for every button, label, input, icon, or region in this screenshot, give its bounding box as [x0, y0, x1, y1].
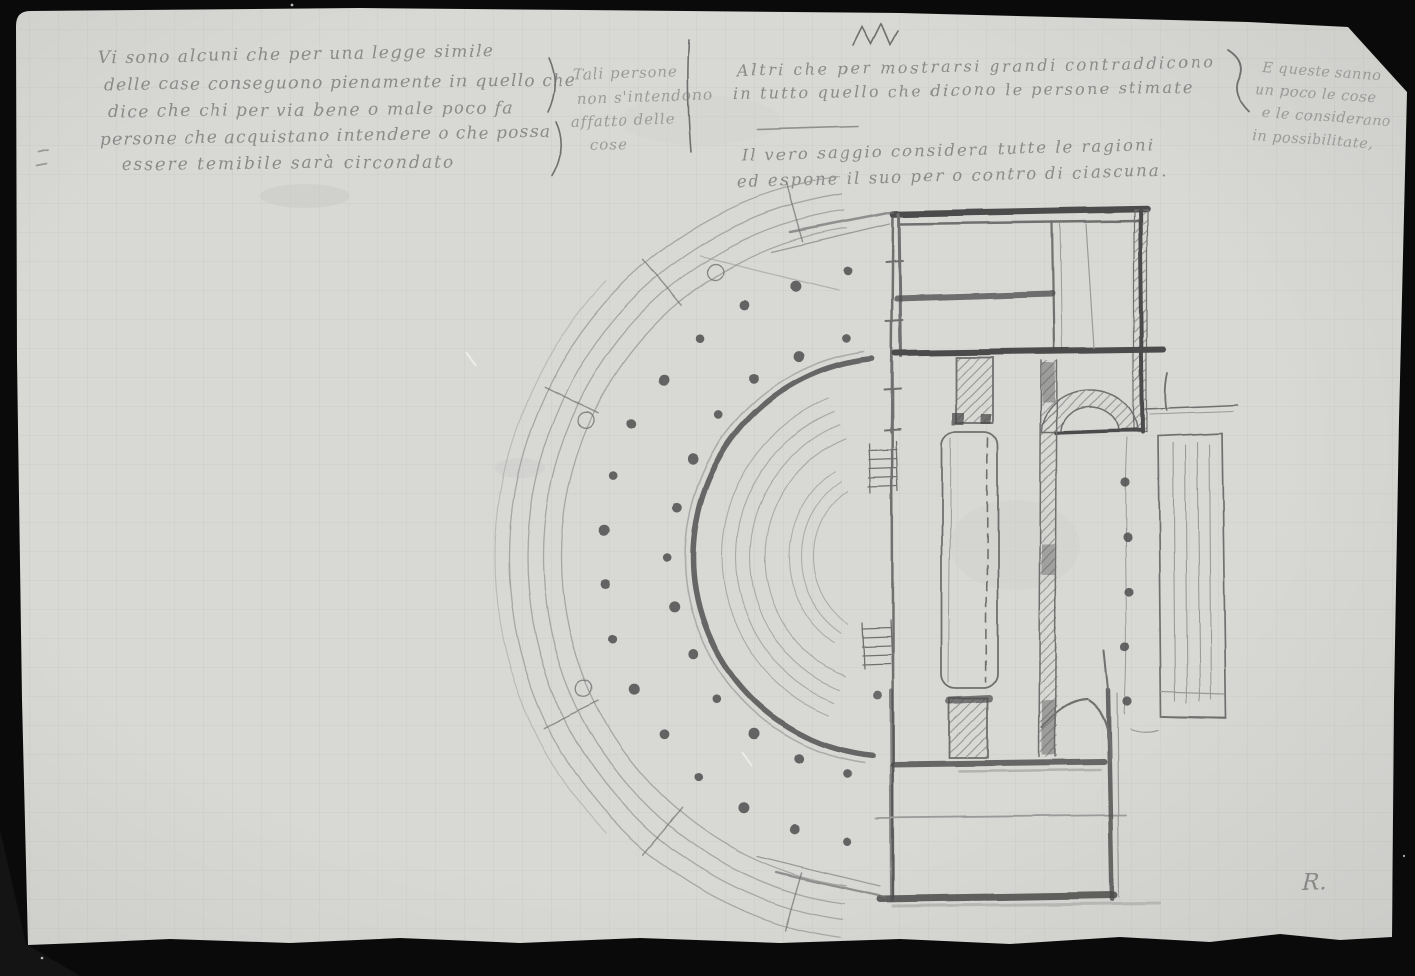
column-dot-outer [608, 471, 617, 480]
handwritten-line: delle case conseguono pienamente in quel… [104, 71, 576, 95]
column-dot-outer [739, 803, 750, 814]
column-dot-outer [696, 334, 705, 343]
column-dot-outer [694, 773, 703, 782]
column-dot-outer [608, 634, 617, 643]
wall-dark-segment [1042, 362, 1055, 402]
handwritten-line: cose [590, 135, 629, 154]
bottom-block-upper-band [893, 762, 1104, 765]
handwritten-line: essere temibile sarà circondato [122, 152, 455, 175]
column-dot-inner [714, 411, 723, 420]
dust-speck [41, 957, 44, 960]
top-block-bottom-band [895, 349, 1164, 353]
handwritten-line: dice che chi per via bene o male poco fa [108, 98, 515, 122]
handwritten-line: affatto delle [571, 109, 676, 131]
column-dot-inner [688, 650, 698, 660]
handwritten-line: Tali persone [573, 62, 679, 84]
bottom-block-bottom-band [880, 895, 1114, 899]
column-dot-outer [660, 729, 670, 739]
column-dot-right [1122, 532, 1131, 541]
photo: Vi sono alcuni che per una legge simile … [0, 0, 1415, 976]
column-dot-inner [687, 454, 698, 465]
column-dot-outer [739, 300, 749, 310]
scene-wall-heavy [891, 690, 892, 900]
wall-dark-segment [1042, 700, 1055, 755]
column-dot-outer [790, 825, 800, 835]
column-dot-inner [843, 769, 852, 778]
column-dot-right [1122, 696, 1131, 705]
column-dot-inner [794, 350, 805, 361]
column-dot-outer [628, 684, 639, 695]
pier-top-band [950, 698, 990, 700]
pier-footing [981, 414, 991, 424]
wall-dark-segment [1042, 545, 1055, 575]
column-dot-right [1120, 642, 1129, 651]
column-dot-right [1120, 477, 1129, 486]
column-dot-outer [659, 374, 670, 385]
annex-bottom-edge [1163, 716, 1226, 717]
column-dot-inner [672, 502, 682, 512]
column-dot-outer [626, 419, 636, 429]
column-dot-inner [842, 334, 851, 343]
pier-footing [952, 413, 964, 425]
column-dot-inner [713, 695, 722, 704]
column-dot-inner [749, 373, 759, 383]
column-dot-outer [599, 524, 610, 535]
column-dot-inner [794, 754, 804, 764]
column-dot-inner [669, 602, 680, 613]
column-dot-outer [843, 266, 852, 275]
column-dot-outer [601, 579, 611, 589]
top-block-left-wall [899, 214, 901, 356]
lower-pier-hatch [950, 698, 988, 758]
long-hatched-wall [1039, 360, 1057, 757]
column-dot-inner [663, 553, 672, 562]
dust-speck [1403, 855, 1405, 857]
signature-r: R. [1301, 870, 1327, 896]
column-dot-outer [790, 280, 801, 291]
column-dot [873, 690, 882, 699]
column-dot-inner [749, 729, 760, 740]
column-dot-right [1124, 587, 1133, 596]
photograph-of-sketchbook-page: Vi sono alcuni che per una legge simile … [0, 0, 1415, 976]
dust-speck [291, 4, 294, 7]
column-dot-outer [844, 837, 853, 846]
